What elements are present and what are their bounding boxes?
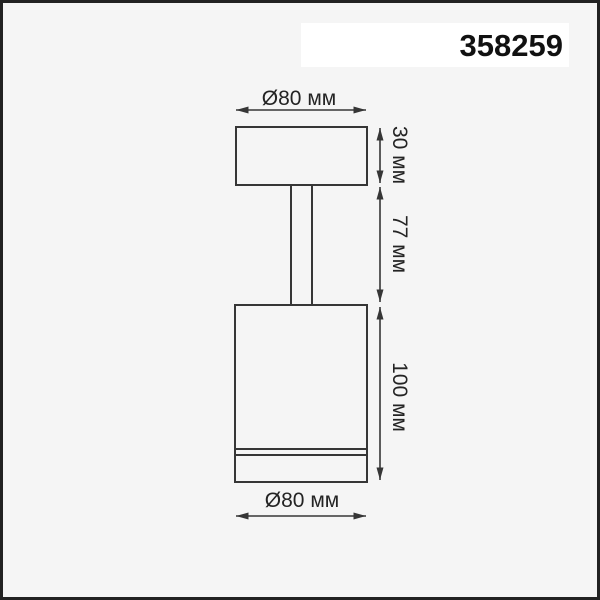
fixture-canopy <box>236 127 367 185</box>
dim-label-top-diameter: Ø80 мм <box>262 87 336 110</box>
dim-label-77mm: 77 мм <box>388 215 411 273</box>
dim-label-100mm: 100 мм <box>388 362 411 432</box>
dim-label-bottom-diameter: Ø80 мм <box>265 489 339 512</box>
product-drawing-page: 358259 Ø80 мм 30 мм 77 мм 100 мм Ø80 мм <box>0 0 600 600</box>
dimension-drawing: Ø80 мм 30 мм 77 мм 100 мм Ø80 мм <box>3 3 600 600</box>
dim-label-30mm: 30 мм <box>388 126 411 184</box>
fixture-stem <box>291 185 312 305</box>
